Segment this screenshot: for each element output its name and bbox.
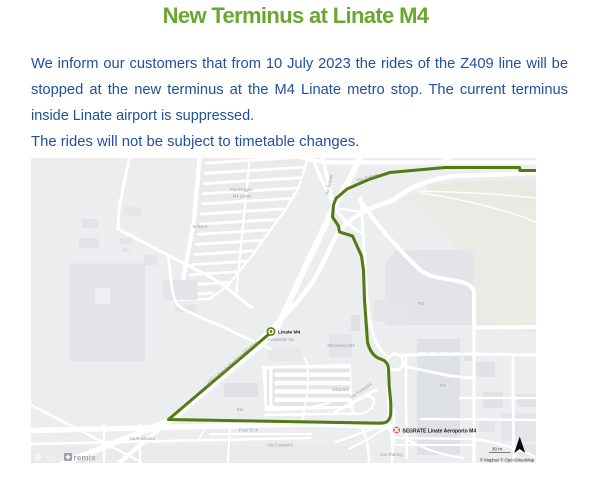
svg-text:Kiss&Ride M4: Kiss&Ride M4: [268, 337, 295, 342]
svg-text:P1: P1: [440, 383, 446, 389]
svg-text:B.Rent: B.Rent: [193, 224, 208, 229]
svg-text:Italopark: Italopark: [332, 387, 350, 392]
svg-text:Via Fontanini: Via Fontanini: [267, 443, 293, 448]
svg-text:Eni: Eni: [237, 407, 243, 412]
svg-text:Parcheggio: Parcheggio: [230, 187, 252, 192]
svg-text:Free To X: Free To X: [239, 428, 258, 433]
svg-text:Car sharing: Car sharing: [380, 452, 403, 457]
svg-text:Via Fontanini: Via Fontanini: [129, 436, 155, 441]
svg-text:SEGRATE Linate Aeroporto M4: SEGRATE Linate Aeroporto M4: [403, 428, 477, 434]
svg-text:Linate M4: Linate M4: [278, 330, 300, 336]
svg-text:M4 Linate: M4 Linate: [233, 193, 252, 198]
svg-text:remix: remix: [74, 454, 97, 463]
svg-text:© Mapbox © OpenStreetMap: © Mapbox © OpenStreetMap: [480, 458, 535, 463]
svg-text:P2: P2: [418, 301, 424, 307]
svg-text:30 m: 30 m: [492, 447, 502, 452]
svg-text:Mezzanino M4: Mezzanino M4: [328, 343, 356, 348]
